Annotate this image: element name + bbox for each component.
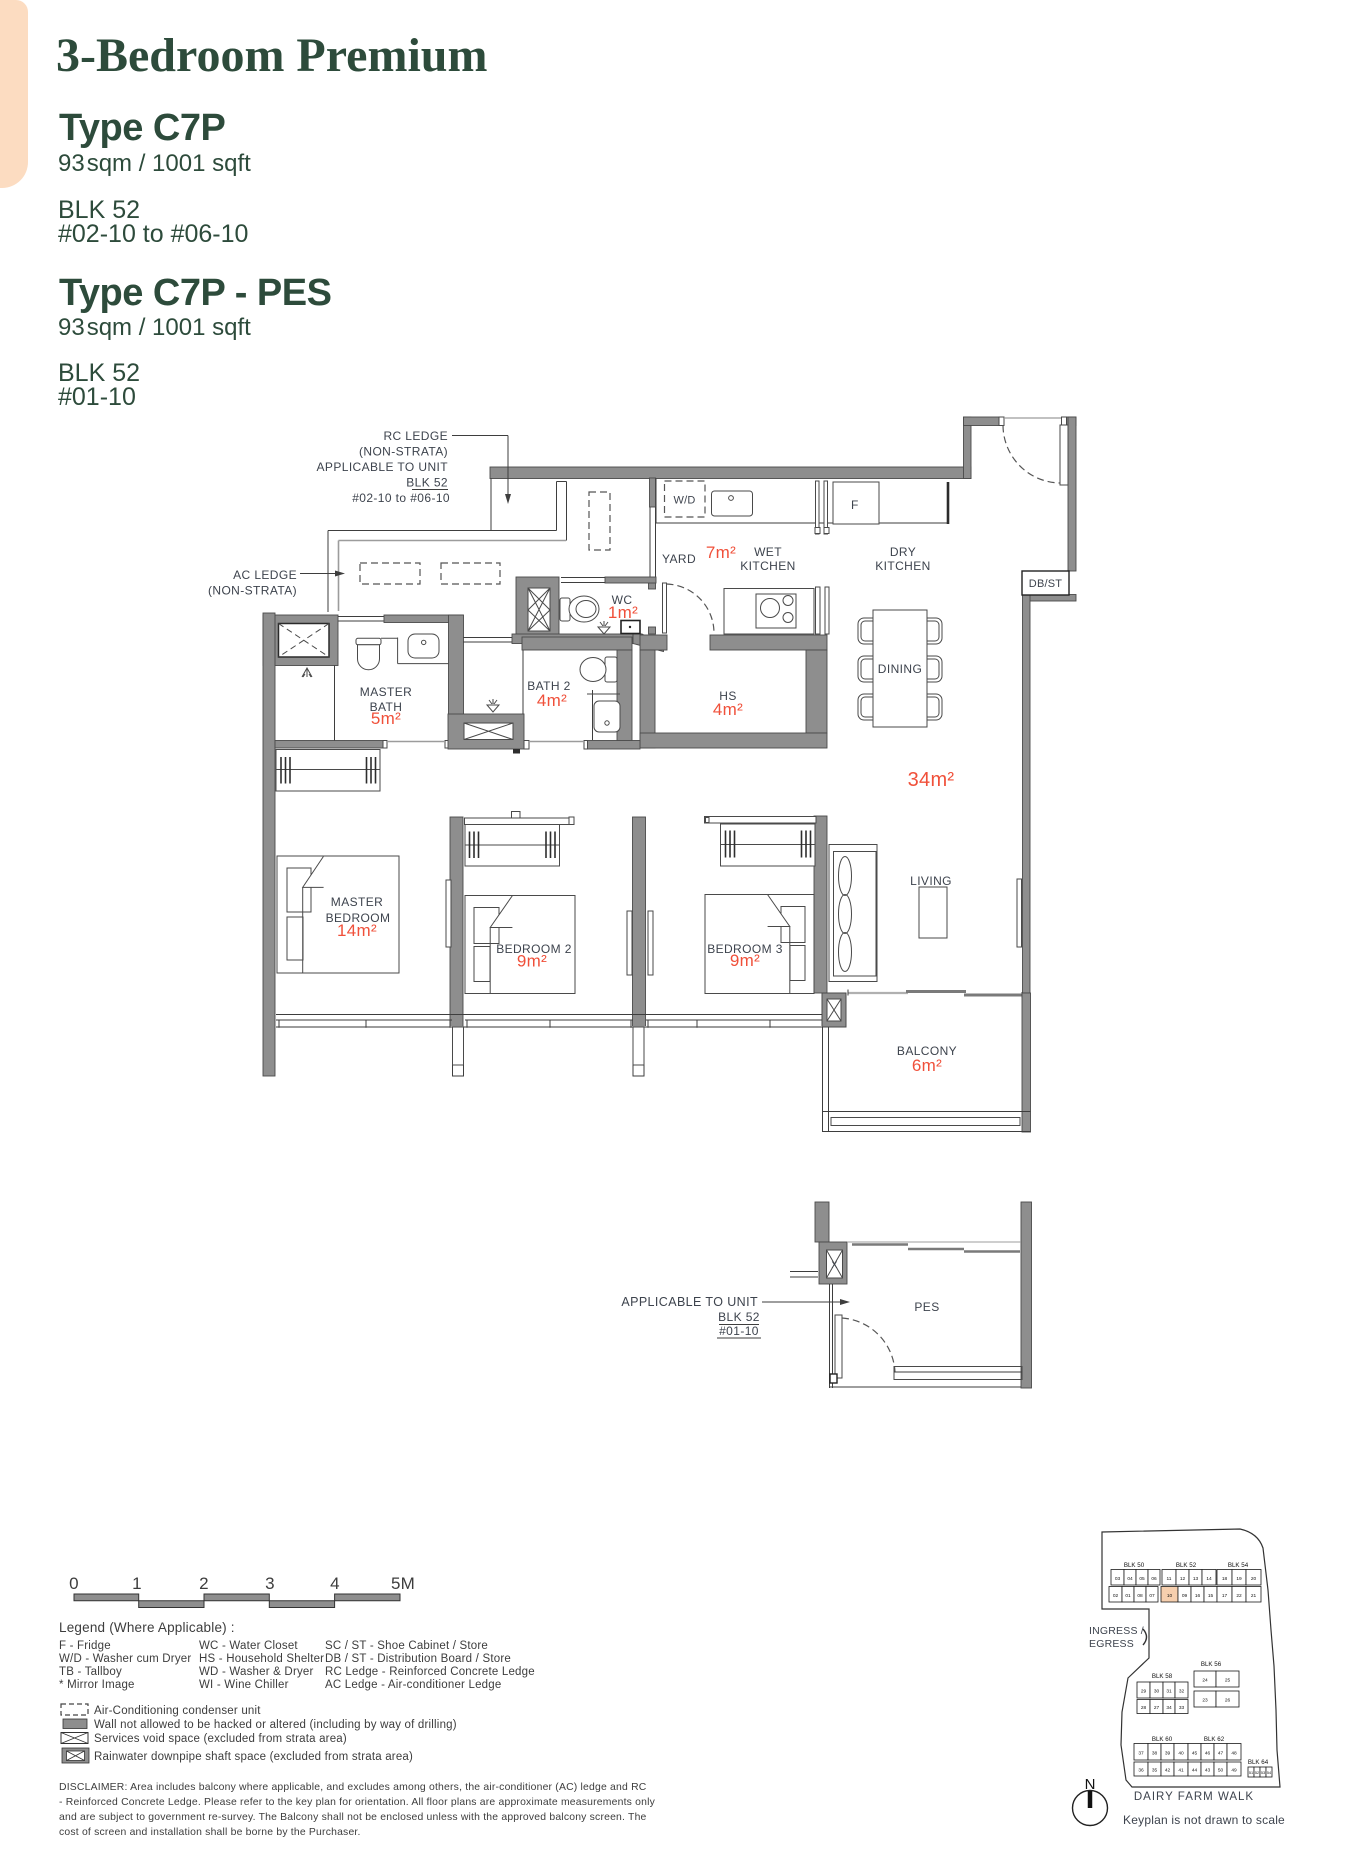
svg-text:BLK 52: BLK 52 [406,476,448,490]
svg-text:19: 19 [1236,1576,1242,1582]
svg-text:BLK 52: BLK 52 [1176,1562,1197,1569]
svg-text:18: 18 [1222,1576,1228,1582]
svg-text:9m²: 9m² [517,952,547,971]
svg-text:34m²: 34m² [908,769,955,791]
svg-text:27: 27 [1154,1705,1160,1711]
svg-text:KITCHEN: KITCHEN [875,559,930,573]
svg-text:DB / ST - Distribution Board /: DB / ST - Distribution Board / Store [325,1653,511,1665]
svg-text:07: 07 [1149,1593,1155,1599]
svg-text:DISCLAIMER: Area includes balc: DISCLAIMER: Area includes balcony where … [59,1782,647,1793]
svg-text:14m²: 14m² [337,921,377,940]
svg-text:SC / ST - Shoe Cabinet / Store: SC / ST - Shoe Cabinet / Store [325,1640,488,1652]
svg-text:48: 48 [1231,1750,1237,1756]
svg-text:41: 41 [1178,1768,1184,1774]
svg-text:BLK 62: BLK 62 [1204,1736,1225,1743]
svg-text:54: 54 [1267,1771,1271,1775]
svg-text:WD - Washer & Dryer: WD - Washer & Dryer [199,1666,314,1678]
svg-text:08: 08 [1137,1593,1143,1599]
svg-text:#02-10 to #06-10: #02-10 to #06-10 [352,491,450,505]
svg-text:(NON-STRATA): (NON-STRATA) [208,584,297,598]
svg-text:Rainwater downpipe shaft space: Rainwater downpipe shaft space (excluded… [94,1751,413,1763]
svg-text:28: 28 [1141,1705,1147,1711]
svg-text:W/D: W/D [674,495,696,507]
svg-text:RC LEDGE: RC LEDGE [383,429,448,443]
svg-text:09: 09 [1182,1593,1188,1599]
svg-text:22: 22 [1236,1593,1242,1599]
svg-text:WC - Water Closet: WC - Water Closet [199,1640,298,1652]
svg-text:26: 26 [1225,1698,1231,1704]
svg-text:Wall not allowed to be hacked: Wall not allowed to be hacked or altered… [94,1719,457,1731]
svg-text:29: 29 [1141,1689,1147,1695]
svg-text:0: 0 [69,1574,79,1593]
svg-text:F - Fridge: F - Fridge [59,1640,111,1652]
svg-text:BLK 56: BLK 56 [1201,1661,1222,1668]
svg-text:30: 30 [1154,1689,1160,1695]
svg-text:N: N [1085,1776,1096,1793]
svg-text:51: 51 [1249,1771,1253,1775]
svg-text:5m²: 5m² [371,709,401,728]
svg-text:F: F [851,498,859,512]
svg-text:YARD: YARD [662,552,696,566]
svg-text:32: 32 [1179,1689,1185,1695]
svg-text:WET: WET [754,545,782,559]
svg-text:25: 25 [1225,1678,1231,1684]
svg-text:BLK 52: BLK 52 [718,1310,760,1324]
svg-text:4m²: 4m² [713,700,743,719]
svg-text:50: 50 [1218,1768,1224,1774]
svg-text:35: 35 [1152,1768,1158,1774]
svg-text:APPLICABLE TO UNIT: APPLICABLE TO UNIT [621,1295,758,1309]
svg-text:4: 4 [330,1574,340,1593]
svg-text:37: 37 [1138,1750,1144,1756]
svg-text:12: 12 [1180,1576,1186,1582]
svg-text:36: 36 [1138,1768,1144,1774]
svg-text:Services void space (excluded: Services void space (excluded from strat… [94,1733,347,1745]
svg-text:DAIRY FARM WALK: DAIRY FARM WALK [1134,1791,1254,1803]
svg-text:44: 44 [1192,1768,1198,1774]
svg-text:47: 47 [1218,1750,1224,1756]
svg-text:5M: 5M [391,1574,415,1593]
svg-text:04: 04 [1127,1576,1133,1582]
svg-text:17: 17 [1222,1593,1228,1599]
svg-text:52: 52 [1255,1771,1259,1775]
svg-text:TB - Tallboy: TB - Tallboy [59,1666,122,1678]
svg-text:BLK 54: BLK 54 [1228,1562,1249,1569]
svg-text:53: 53 [1261,1771,1265,1775]
svg-text:KITCHEN: KITCHEN [740,559,795,573]
svg-text:APPLICABLE TO UNIT: APPLICABLE TO UNIT [317,460,449,474]
svg-text:7m²: 7m² [706,543,736,562]
svg-text:BLK 60: BLK 60 [1152,1736,1173,1743]
svg-text:MASTER: MASTER [331,895,383,909]
svg-text:40: 40 [1178,1750,1184,1756]
svg-text:13: 13 [1193,1576,1199,1582]
svg-text:WI - Wine Chiller: WI - Wine Chiller [199,1679,289,1691]
svg-text:15: 15 [1208,1593,1214,1599]
svg-text:AC LEDGE: AC LEDGE [233,568,297,582]
svg-text:2: 2 [199,1574,209,1593]
svg-text:RC Ledge - Reinforced Concrete: RC Ledge - Reinforced Concrete Ledge [325,1666,535,1678]
svg-text:Legend (Where Applicable) :: Legend (Where Applicable) : [59,1620,235,1635]
svg-text:39: 39 [1165,1750,1171,1756]
svg-text:DB/ST: DB/ST [1029,578,1062,590]
svg-text:AC Ledge - Air-conditioner Led: AC Ledge - Air-conditioner Ledge [325,1679,501,1691]
svg-text:23: 23 [1202,1698,1208,1704]
svg-text:21: 21 [1251,1593,1257,1599]
svg-text:3: 3 [265,1574,275,1593]
svg-text:16: 16 [1195,1593,1201,1599]
svg-text:BLK 64: BLK 64 [1248,1759,1269,1766]
svg-text:and are subject to government: and are subject to government re-survey.… [59,1812,647,1823]
svg-text:11: 11 [1167,1576,1172,1582]
svg-text:Air-Conditioning condenser uni: Air-Conditioning condenser unit [94,1705,261,1717]
svg-text:33: 33 [1179,1705,1185,1711]
svg-text:Keyplan is not drawn to scale: Keyplan is not drawn to scale [1123,1813,1285,1827]
svg-text:42: 42 [1165,1768,1171,1774]
svg-text:46: 46 [1205,1750,1211,1756]
svg-text:1m²: 1m² [608,603,638,622]
svg-text:9m²: 9m² [730,951,760,970]
svg-text:38: 38 [1152,1750,1158,1756]
svg-text:(NON-STRATA): (NON-STRATA) [359,445,448,459]
svg-text:* Mirror Image: * Mirror Image [59,1679,135,1691]
svg-text:BLK 58: BLK 58 [1152,1673,1173,1680]
svg-text:06: 06 [1151,1576,1157,1582]
svg-text:BLK 50: BLK 50 [1124,1562,1145,1569]
svg-text:6m²: 6m² [912,1056,942,1075]
svg-text:X: X [831,1260,837,1270]
svg-text:34: 34 [1166,1705,1172,1711]
svg-text:01: 01 [1125,1593,1131,1599]
svg-text:24: 24 [1202,1678,1208,1684]
svg-text:LIVING: LIVING [910,874,952,888]
svg-text:DRY: DRY [890,545,916,559]
svg-text:14: 14 [1206,1576,1212,1582]
svg-text:49: 49 [1231,1768,1237,1774]
svg-text:02: 02 [1113,1593,1119,1599]
svg-text:1: 1 [132,1574,142,1593]
svg-text:cost of screen and installatio: cost of screen and installation shall be… [59,1827,361,1838]
svg-text:45: 45 [1192,1750,1198,1756]
svg-text:W/D - Washer cum Dryer: W/D - Washer cum Dryer [59,1653,191,1665]
svg-text:20: 20 [1251,1576,1257,1582]
svg-text:MASTER: MASTER [360,685,412,699]
svg-text:PES: PES [914,1300,939,1314]
svg-text:HS - Household Shelter: HS - Household Shelter [199,1653,324,1665]
svg-text:03: 03 [1115,1576,1121,1582]
svg-text:05: 05 [1139,1576,1145,1582]
svg-text:4m²: 4m² [537,691,567,710]
svg-text:DINING: DINING [878,662,922,676]
svg-text:- Reinforced Concrete Ledge. P: - Reinforced Concrete Ledge. Please refe… [59,1797,656,1808]
svg-text:#01-10: #01-10 [719,1324,759,1338]
svg-text:EGRESS: EGRESS [1089,1638,1134,1650]
svg-text:10: 10 [1167,1593,1173,1599]
svg-text:31: 31 [1166,1689,1172,1695]
svg-text:INGRESS /: INGRESS / [1089,1625,1144,1637]
svg-text:43: 43 [1205,1768,1211,1774]
